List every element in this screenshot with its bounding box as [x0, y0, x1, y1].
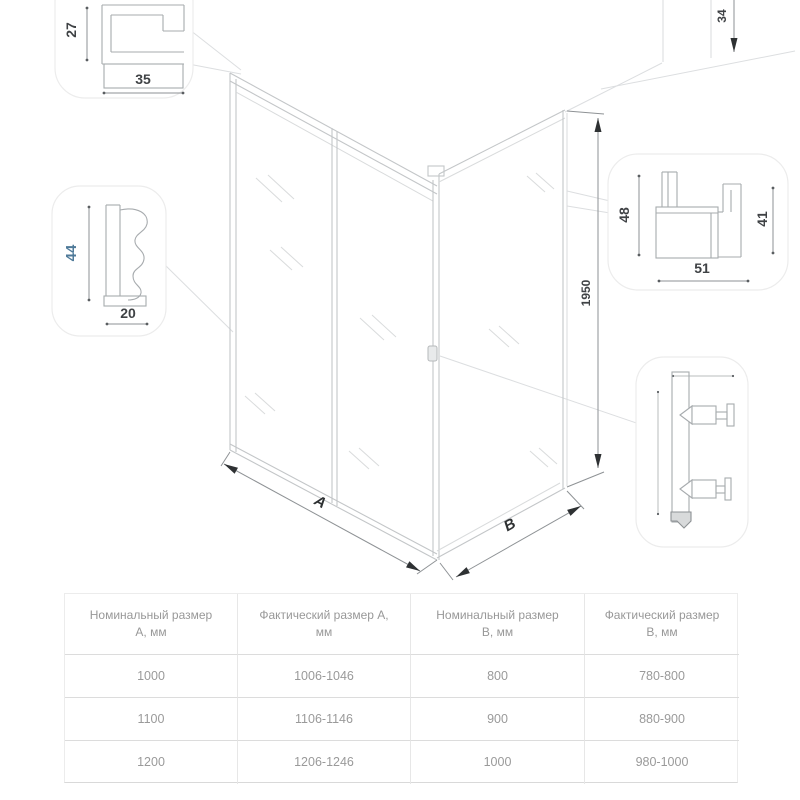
dimension-34-label: 34 — [715, 9, 729, 23]
table-header-nominal-b: Номинальный размер B, мм — [411, 594, 585, 655]
wall-profile-height-label: 44 — [63, 244, 80, 261]
top-rail-section-detail: 34 — [663, 0, 738, 62]
corner-profile-width-label: 51 — [694, 260, 710, 276]
table-cell: 1206-1246 — [238, 741, 411, 784]
table-cell: 1006-1046 — [238, 655, 411, 698]
size-table: Номинальный размер A, мм Фактический раз… — [64, 593, 738, 783]
table-cell: 1200 — [65, 741, 238, 784]
table-cell: 1000 — [411, 741, 585, 784]
table-cell: 980-1000 — [585, 741, 739, 784]
dimension-height: 1950 — [567, 111, 604, 487]
top-profile-detail: 27 35 — [55, 0, 193, 98]
table-cell: 780-800 — [585, 655, 739, 698]
dimension-b-label: B — [501, 515, 519, 535]
handle-detail — [636, 357, 748, 547]
glass-reflections — [245, 173, 557, 469]
corner-profile-detail: 48 41 51 — [608, 154, 788, 290]
table-header-actual-b: Фактический размер B, мм — [585, 594, 739, 655]
table-cell: 900 — [411, 698, 585, 741]
technical-drawing-page: A B 1950 34 27 — [0, 0, 800, 800]
top-profile-width-label: 35 — [135, 71, 151, 87]
corner-profile-48-label: 48 — [616, 207, 632, 223]
table-cell: 800 — [411, 655, 585, 698]
table-cell: 1000 — [65, 655, 238, 698]
top-profile-height-label: 27 — [63, 22, 79, 38]
dimension-height-label: 1950 — [579, 279, 593, 306]
table-cell: 1106-1146 — [238, 698, 411, 741]
door-handle — [428, 346, 437, 361]
corner-profile-41-label: 41 — [754, 211, 770, 227]
shower-enclosure-drawing: A B 1950 34 27 — [0, 0, 800, 595]
enclosure-frame — [230, 73, 567, 560]
table-cell: 1100 — [65, 698, 238, 741]
wall-profile-depth-label: 20 — [120, 305, 136, 321]
table-header-nominal-a: Номинальный размер A, мм — [65, 594, 238, 655]
table-cell: 880-900 — [585, 698, 739, 741]
table-header-actual-a: Фактический размер A, мм — [238, 594, 411, 655]
wall-profile-detail: 44 20 — [52, 186, 166, 336]
dimension-b: B — [440, 491, 584, 580]
dimension-a: A — [221, 452, 437, 574]
